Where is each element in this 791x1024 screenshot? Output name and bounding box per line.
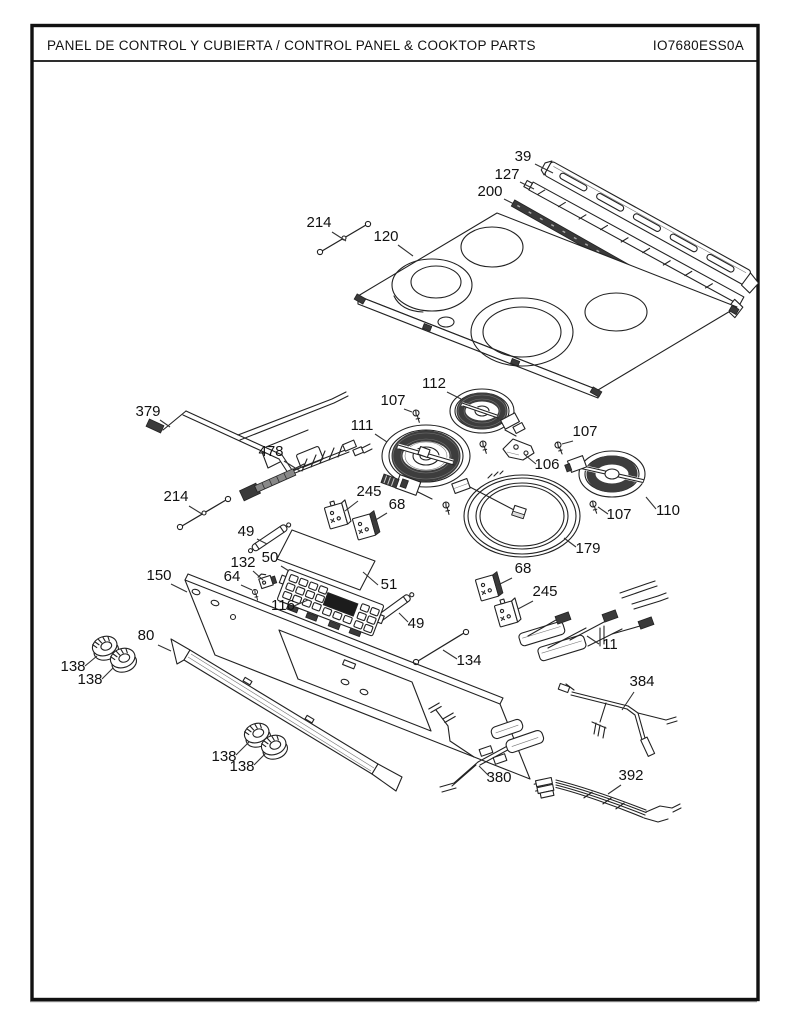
callout-label-107-b: 107 (572, 423, 597, 440)
callout-245-left: 245 (345, 483, 382, 511)
part-107-screw-c (588, 500, 602, 513)
callout-leader-11 (587, 636, 599, 644)
part-392-harness (534, 778, 681, 822)
callout-392: 392 (608, 767, 644, 794)
callout-106: 106 (525, 455, 560, 473)
callout-leader-138-a (85, 656, 97, 666)
callout-label-134: 134 (456, 652, 481, 669)
callout-245-right: 245 (518, 583, 558, 609)
callout-label-214-left: 214 (163, 488, 188, 505)
callout-label-120: 120 (373, 228, 398, 245)
part-107-screw-a (410, 409, 424, 423)
callout-label-384: 384 (629, 673, 654, 690)
callout-label-112: 112 (422, 375, 446, 392)
callout-leader-392 (608, 785, 621, 794)
callout-leader-214-left (189, 506, 202, 514)
callout-150: 150 (146, 567, 187, 592)
callout-112: 112 (422, 375, 461, 399)
callout-label-116: 116 (271, 597, 295, 614)
callout-leader-107-b (562, 441, 573, 444)
callout-leader-245-right (518, 601, 533, 609)
callout-label-110: 110 (656, 502, 680, 519)
callout-leader-49-bottom (399, 613, 408, 622)
callout-478: 478 (258, 443, 300, 471)
callout-label-478: 478 (258, 443, 283, 460)
callout-49-bottom: 49 (399, 613, 424, 632)
callout-leader-132 (253, 571, 263, 580)
callout-label-68-left: 68 (389, 496, 406, 513)
callout-leader-138-b (102, 668, 113, 679)
part-68-switch-right (475, 572, 504, 601)
callout-label-127: 127 (494, 166, 519, 183)
callout-107-c: 107 (598, 506, 632, 523)
callout-380: 380 (479, 766, 512, 786)
part-245-switch-left (323, 498, 351, 529)
callout-134: 134 (443, 650, 482, 669)
callout-138-b: 138 (77, 668, 113, 688)
callout-label-49-top: 49 (238, 523, 255, 540)
callout-64: 64 (224, 568, 252, 590)
callout-179: 179 (564, 538, 601, 557)
callout-leader-110 (646, 497, 656, 509)
callout-leader-200 (504, 199, 514, 204)
part-112-element-small (450, 389, 525, 436)
callout-label-379: 379 (135, 403, 160, 420)
page-title: PANEL DE CONTROL Y CUBIERTA / CONTROL PA… (47, 38, 536, 53)
callout-leader-111 (375, 434, 387, 442)
callout-label-150: 150 (146, 567, 171, 584)
callout-label-64: 64 (224, 568, 241, 585)
callout-200: 200 (477, 183, 514, 204)
part-245-switch-right (493, 596, 521, 627)
callout-214-left: 214 (163, 488, 202, 514)
parts-diagram-svg: PANEL DE CONTROL Y CUBIERTA / CONTROL PA… (0, 0, 791, 1024)
callout-label-51: 51 (381, 576, 398, 593)
callout-leader-150 (171, 584, 187, 592)
callout-label-111: 111 (351, 417, 374, 434)
callout-120: 120 (373, 228, 413, 256)
callout-label-50: 50 (262, 549, 279, 566)
callout-leader-50 (281, 566, 289, 571)
part-179-ring (452, 471, 580, 557)
callout-label-11: 11 (602, 636, 618, 653)
callout-label-138-b: 138 (77, 671, 102, 688)
callout-label-138-d: 138 (229, 758, 254, 775)
part-106-bracket (503, 439, 534, 460)
callout-label-245-right: 245 (532, 583, 557, 600)
callout-leader-120 (398, 245, 413, 256)
callout-label-49-bottom: 49 (408, 615, 425, 632)
callout-214-top: 214 (306, 214, 346, 241)
callout-111: 111 (351, 417, 387, 442)
callout-384: 384 (622, 673, 655, 710)
part-64-screw (250, 588, 262, 600)
callout-110: 110 (646, 497, 680, 519)
callout-107-a: 107 (380, 392, 412, 412)
parts-diagram-page: PANEL DE CONTROL Y CUBIERTA / CONTROL PA… (0, 0, 791, 1024)
doc-number: IO7680ESS0A (653, 38, 744, 53)
callout-leader-138-d (254, 753, 266, 765)
callout-leader-134 (443, 650, 457, 659)
part-110-element-right (564, 451, 645, 497)
callout-label-80: 80 (138, 627, 155, 644)
callout-68-right: 68 (498, 560, 531, 585)
part-384-harness (558, 683, 677, 756)
screw-small (477, 440, 491, 454)
callout-label-68-right: 68 (515, 560, 532, 577)
callout-label-179: 179 (575, 540, 600, 557)
callout-label-245-left: 245 (356, 483, 381, 500)
callout-leader-64 (241, 585, 252, 590)
callout-leader-107-a (404, 409, 412, 412)
callout-label-107-c: 107 (606, 506, 631, 523)
callout-label-392: 392 (618, 767, 643, 784)
callout-leader-138-c (236, 742, 249, 755)
callout-label-107-a: 107 (380, 392, 405, 409)
part-132-clip (258, 570, 278, 588)
screw-small (440, 501, 454, 515)
callout-80: 80 (138, 627, 171, 651)
callout-label-380: 380 (486, 769, 511, 786)
callout-leader-80 (158, 645, 171, 651)
callout-label-106: 106 (534, 456, 559, 473)
callout-107-b: 107 (562, 423, 598, 444)
callout-leader-384 (622, 692, 634, 710)
callout-label-200: 200 (477, 183, 502, 200)
part-68-switch-left (352, 511, 381, 540)
callout-label-214-top: 214 (306, 214, 331, 231)
callout-label-39: 39 (515, 148, 532, 165)
